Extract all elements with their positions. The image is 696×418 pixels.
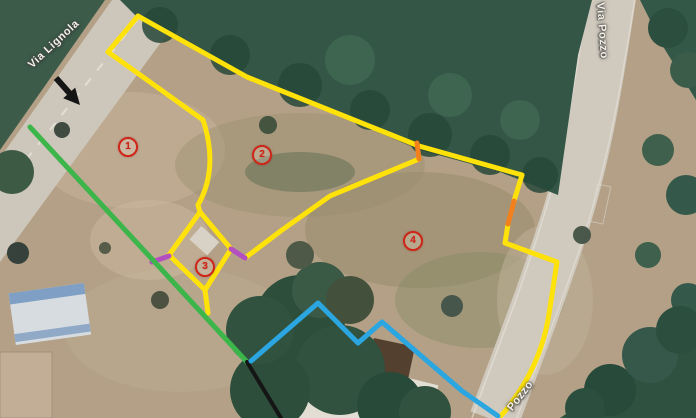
boundary-orange-right-segment [508, 201, 514, 224]
boundary-top-edge [138, 16, 522, 175]
annotation-overlay [0, 0, 696, 418]
boundary-purple-right-segment [231, 249, 245, 258]
parcel-marker-1-label: 1 [125, 141, 131, 152]
boundary-blue [251, 303, 498, 416]
boundary-black [247, 362, 281, 418]
parcel-marker-4: 4 [403, 231, 423, 251]
parcel-marker-3-label: 3 [202, 261, 208, 272]
boundary-small-parcel [169, 212, 231, 290]
parcel-marker-3: 3 [195, 257, 215, 277]
boundary-strip-lower-edge [108, 52, 210, 212]
satellite-scene: 1 2 3 4 Via Lignola Via Pozzo Pozzo [0, 0, 696, 418]
boundary-inner-diagonal [245, 159, 419, 258]
boundary-strip-left-edge [108, 16, 138, 52]
boundary-green [30, 127, 247, 362]
parcel-marker-4-label: 4 [410, 235, 416, 246]
parcel-marker-2: 2 [252, 145, 272, 165]
parcel-marker-2-label: 2 [259, 149, 265, 160]
arrow-icon [54, 76, 80, 105]
boundary-orange-top-segment [417, 143, 419, 159]
boundary-small-parcel-tail [205, 290, 208, 313]
parcel-marker-1: 1 [118, 137, 138, 157]
boundary-right-upper [514, 175, 522, 201]
